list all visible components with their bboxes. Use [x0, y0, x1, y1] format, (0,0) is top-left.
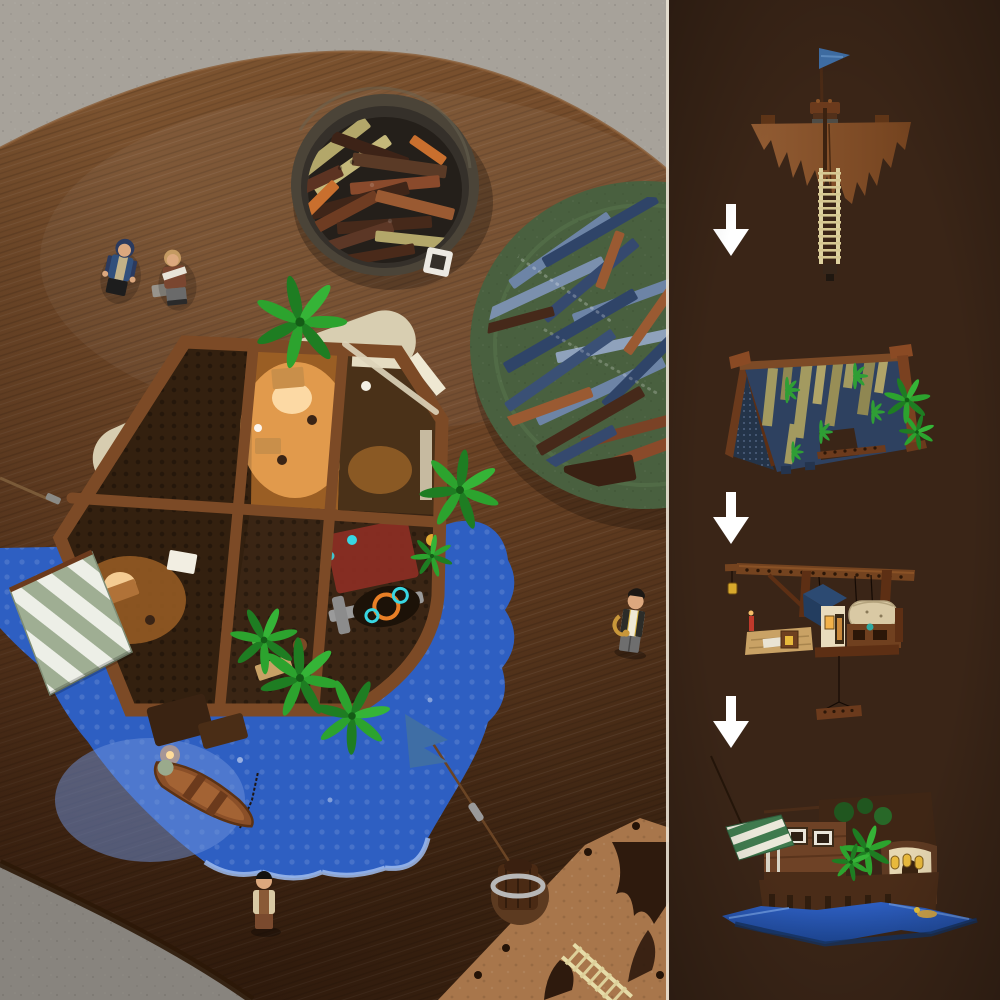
white-frame-piece: [423, 247, 454, 278]
photo-left-panel: [0, 0, 670, 1000]
build-steps-svg: [669, 0, 1000, 1000]
product-photo: [0, 0, 1000, 1000]
panel-vignette: [669, 0, 1000, 1000]
build-steps-panel: [669, 0, 1000, 1000]
table-scene-svg: [0, 0, 670, 1000]
